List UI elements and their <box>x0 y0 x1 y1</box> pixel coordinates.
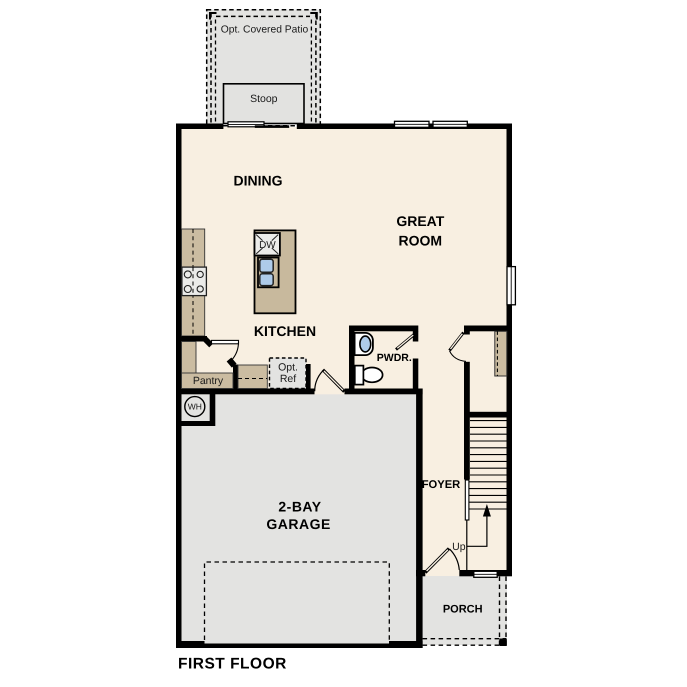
svg-text:Stoop: Stoop <box>250 93 278 105</box>
svg-text:2-BAY: 2-BAY <box>278 499 321 515</box>
svg-text:Opt. Covered Patio: Opt. Covered Patio <box>221 25 309 36</box>
svg-text:PWDR.: PWDR. <box>377 352 412 364</box>
svg-text:DW: DW <box>259 240 276 251</box>
svg-text:Ref: Ref <box>280 373 296 385</box>
svg-text:Up: Up <box>452 541 466 553</box>
svg-text:GARAGE: GARAGE <box>266 516 330 532</box>
svg-text:Opt.: Opt. <box>278 362 298 374</box>
svg-text:FIRST FLOOR: FIRST FLOOR <box>178 656 287 673</box>
svg-text:WH: WH <box>188 402 202 412</box>
svg-text:ROOM: ROOM <box>399 232 443 248</box>
svg-text:KITCHEN: KITCHEN <box>254 323 316 339</box>
svg-text:Pantry: Pantry <box>193 375 224 387</box>
svg-text:GREAT: GREAT <box>396 213 444 229</box>
svg-text:PORCH: PORCH <box>443 604 483 616</box>
svg-text:FOYER: FOYER <box>422 479 461 491</box>
svg-text:DINING: DINING <box>234 172 283 188</box>
